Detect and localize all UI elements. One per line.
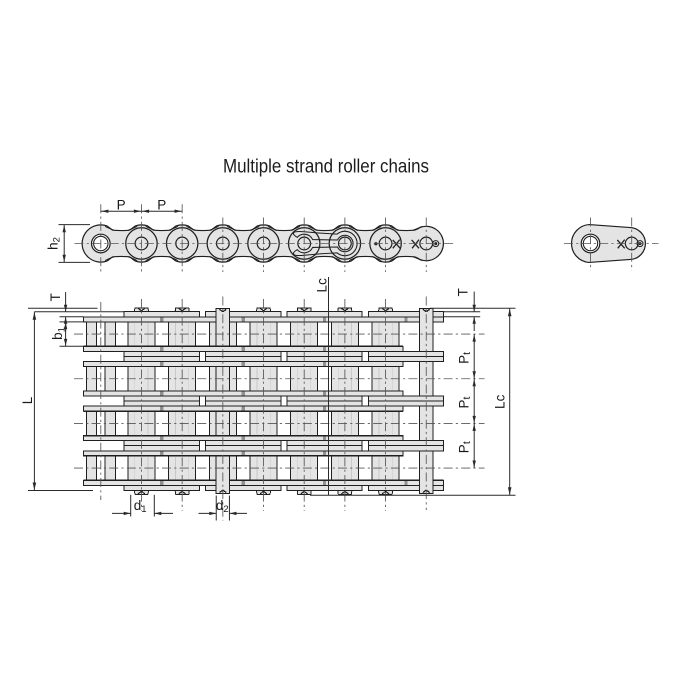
svg-text:T: T — [48, 293, 63, 301]
svg-text:Multiple strand roller chains: Multiple strand roller chains — [223, 155, 429, 176]
svg-text:P: P — [117, 197, 126, 212]
svg-text:P: P — [157, 197, 166, 212]
svg-text:L: L — [20, 396, 35, 404]
svg-text:T: T — [455, 288, 470, 296]
svg-text:Lc: Lc — [493, 394, 508, 409]
svg-text:Lc: Lc — [314, 278, 329, 293]
